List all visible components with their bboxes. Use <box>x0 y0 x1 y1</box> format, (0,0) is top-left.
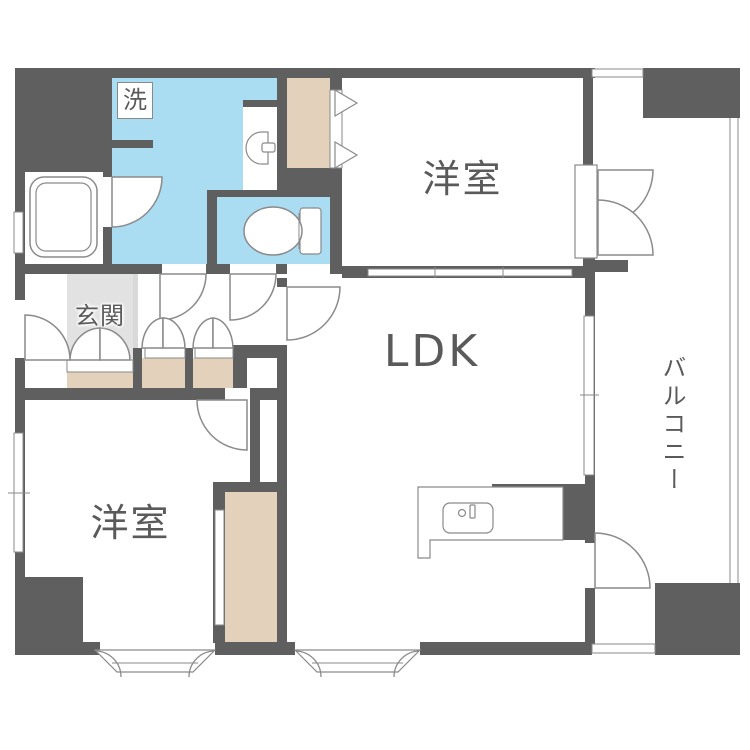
washroom-nook <box>243 78 277 100</box>
hall-closet-2-bifold-left <box>193 318 213 348</box>
bedroom-top-partition-window <box>368 269 572 276</box>
balcony-corner-block-bottom <box>655 583 740 655</box>
hall-closet-1 <box>142 358 185 388</box>
kitchen-sink-icon <box>443 503 493 533</box>
bedroom-top-label: 洋室 <box>390 148 535 203</box>
bedroom-bottom-closet-door <box>215 510 224 625</box>
balcony-label: バルコニー <box>650 310 690 540</box>
ldk-bottom-window <box>592 644 655 653</box>
balcony-corner-block-top <box>643 68 740 118</box>
toilet-door <box>230 274 276 320</box>
bedroom-bottom-label: 洋室 <box>58 492 203 547</box>
ldk-label: LDK <box>352 326 512 377</box>
kitchen-counter <box>418 487 563 558</box>
laundry-machine-label: 洗 <box>117 82 153 119</box>
floor-plan: 洗 洋室 LDK 洋室 玄関 バルコニー <box>0 0 750 750</box>
entrance-step <box>133 274 138 348</box>
shoe-cabinet <box>67 372 133 388</box>
bay-window-left <box>95 650 215 672</box>
toilet-icon <box>244 207 321 255</box>
entrance-label: 玄関 <box>67 296 133 331</box>
bedroom-bottom-door <box>197 400 247 450</box>
bedroom-top-closet <box>287 78 330 168</box>
washroom-floor-ext <box>207 78 243 190</box>
bay-window-right <box>295 650 420 672</box>
french-door-frame <box>575 165 597 258</box>
bath-window <box>14 212 23 253</box>
washroom-door <box>160 274 206 320</box>
hall-closet-2-bifold-right <box>213 318 233 348</box>
closet-arrow-icon-top <box>335 90 357 116</box>
washbasin-icon <box>246 132 275 164</box>
front-door <box>25 315 70 360</box>
closet-arrow-icon-bottom <box>335 142 357 168</box>
hall-closet-2-front <box>195 348 233 358</box>
balcony-railing <box>730 118 738 583</box>
hall-closet-1-bifold-right <box>163 318 185 348</box>
hall-closet-1-front <box>145 348 185 358</box>
bathtub-icon <box>30 177 97 257</box>
ldk-door <box>287 287 340 340</box>
balcony-top-gap <box>592 69 643 77</box>
hall-closet-1-bifold-left <box>142 318 163 348</box>
ldk-balcony-door <box>595 533 650 588</box>
french-door-leaf-bottom <box>598 200 653 255</box>
hall-closet-2 <box>193 358 233 388</box>
entrance-step-strip <box>67 360 133 372</box>
